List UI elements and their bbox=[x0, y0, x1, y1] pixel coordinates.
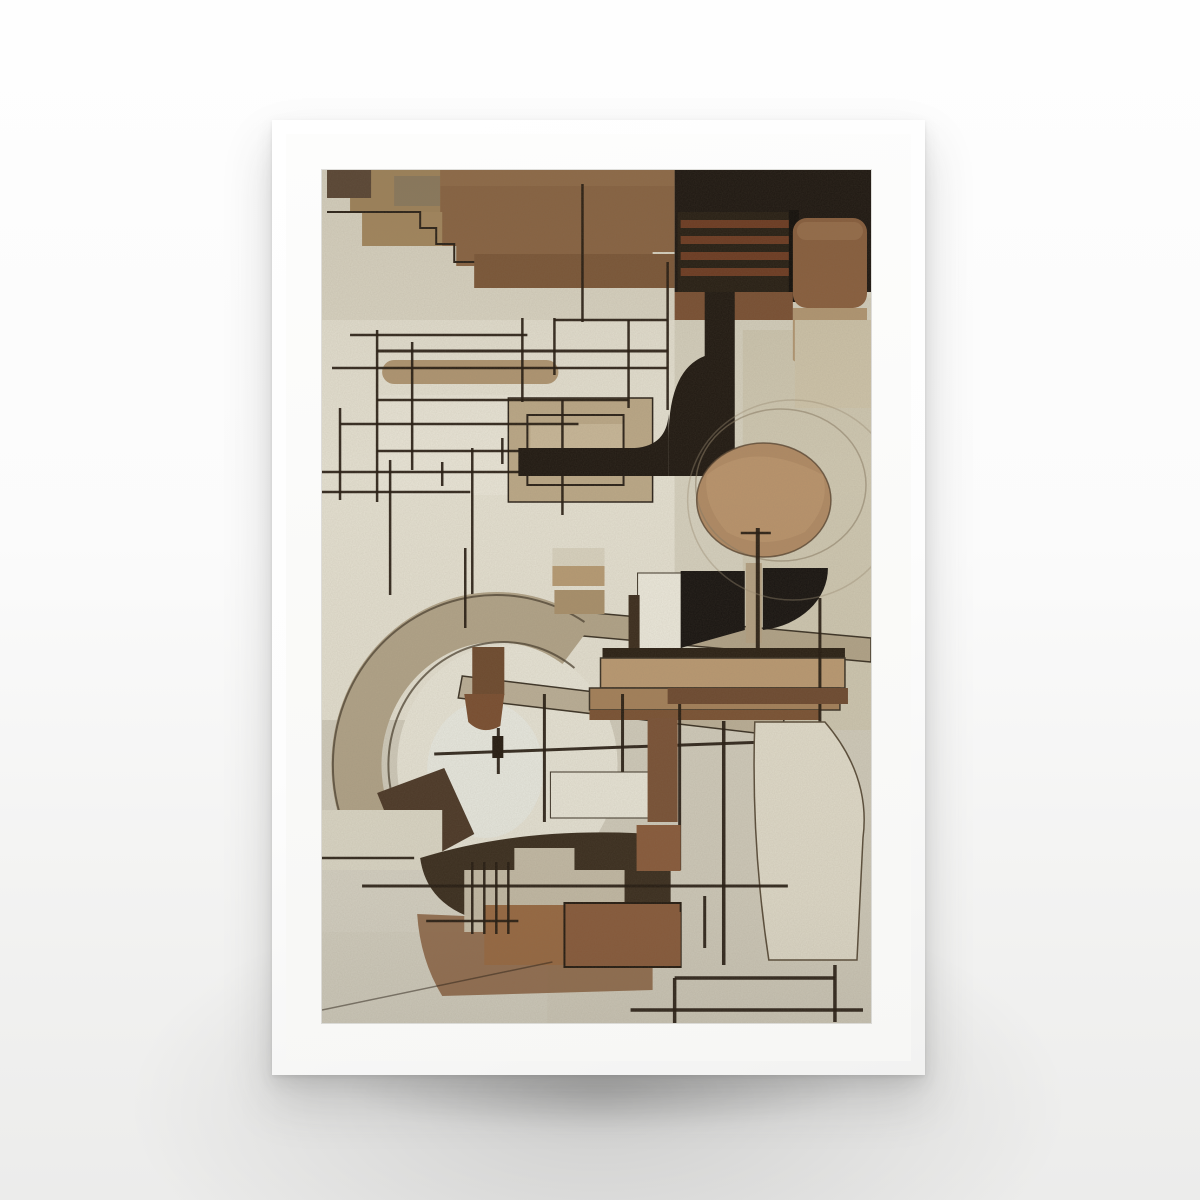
poster-frame bbox=[272, 120, 925, 1075]
mat-board bbox=[286, 134, 911, 1061]
scene bbox=[0, 0, 1200, 1200]
artwork-area bbox=[322, 170, 871, 1023]
frame-bevel bbox=[286, 134, 911, 1061]
abstract-artwork bbox=[322, 170, 871, 1023]
